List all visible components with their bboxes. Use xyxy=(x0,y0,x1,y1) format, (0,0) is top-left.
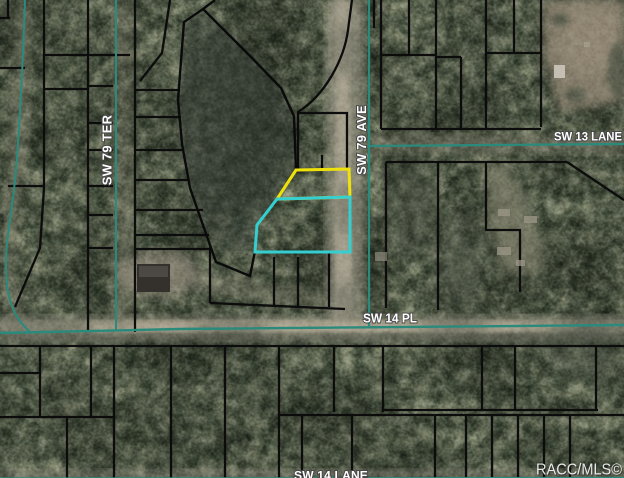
svg-text:SW 79 TER: SW 79 TER xyxy=(100,114,115,185)
svg-text:SW 14 PL: SW 14 PL xyxy=(363,311,417,326)
svg-text:SW 13 LANE: SW 13 LANE xyxy=(554,130,622,144)
svg-text:SW 79 AVE: SW 79 AVE xyxy=(354,105,369,175)
svg-text:SW 14 LANE: SW 14 LANE xyxy=(294,469,368,478)
svg-text:RACC/MLS©: RACC/MLS© xyxy=(536,462,622,478)
